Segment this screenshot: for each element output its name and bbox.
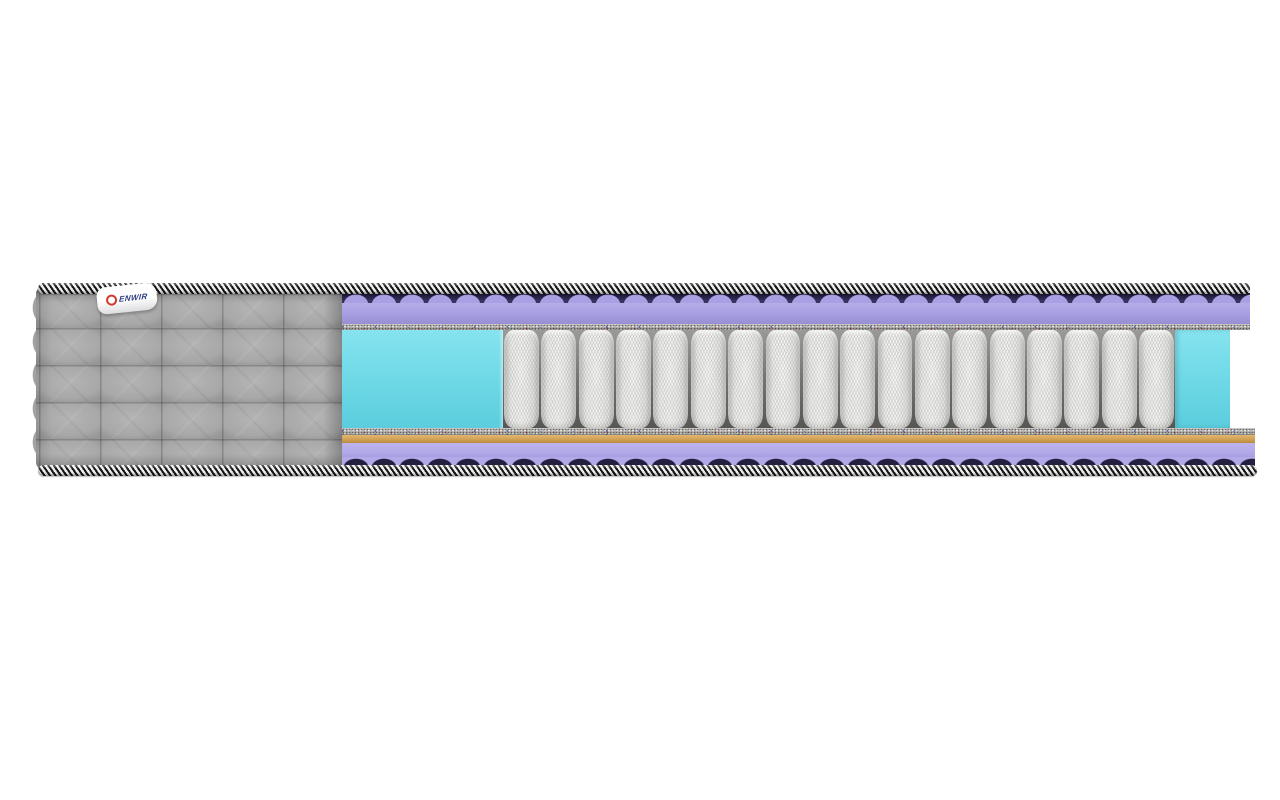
canvas-background: ENWIR xyxy=(0,0,1280,800)
top-foam-slab xyxy=(342,293,1250,330)
spring-coil xyxy=(878,330,913,428)
spring-coil xyxy=(766,330,801,428)
spring-coil xyxy=(1027,330,1062,428)
spring-coil xyxy=(691,330,726,428)
top-foam-body xyxy=(342,303,1250,325)
spring-coil xyxy=(840,330,875,428)
bottom-foam-body xyxy=(342,443,1255,458)
spring-coil xyxy=(653,330,688,428)
spring-coil xyxy=(541,330,576,428)
coir-pad xyxy=(342,435,1255,443)
spring-coil xyxy=(1102,330,1137,428)
spring-coil xyxy=(504,330,539,428)
spring-coil xyxy=(803,330,838,428)
quilted-cover xyxy=(36,286,342,470)
piping-cord-top xyxy=(38,283,1250,294)
spring-coil xyxy=(579,330,614,428)
spring-core xyxy=(342,330,1230,428)
red-ring-icon xyxy=(106,294,118,306)
mattress-cutaway-render: ENWIR xyxy=(36,283,1258,476)
spring-coil xyxy=(915,330,950,428)
spring-coil xyxy=(616,330,651,428)
spring-coil xyxy=(728,330,763,428)
piping-cord-bottom xyxy=(38,465,1257,476)
spring-coil xyxy=(1139,330,1174,428)
brand-tag-label: ENWIR xyxy=(119,292,148,304)
foam-edge-right xyxy=(1175,330,1230,428)
spring-coil xyxy=(1064,330,1099,428)
pocket-springs xyxy=(503,330,1175,428)
spring-coil xyxy=(952,330,987,428)
spring-coil xyxy=(990,330,1025,428)
felt-pad-bottom xyxy=(342,428,1255,435)
foam-edge-left xyxy=(342,330,503,428)
